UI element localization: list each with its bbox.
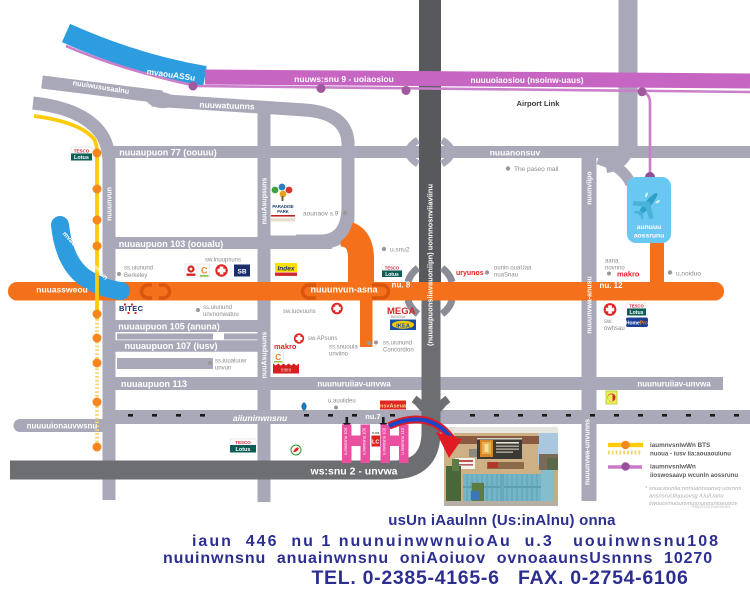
svg-text:nuaSnau: nuaSnau: [494, 273, 518, 279]
svg-text:nuunuruiiav-unvwa: nuunuruiiav-unvwa: [317, 380, 391, 389]
svg-text:nuunuruiiav-unvwa: nuunuruiiav-unvwa: [637, 380, 711, 389]
svg-text:HomePro: HomePro: [626, 321, 648, 327]
svg-text:Berkeley: Berkeley: [124, 273, 147, 279]
svg-text:BANGNA: BANGNA: [391, 315, 406, 319]
svg-text:nuuaupuon 103 (ooualu): nuuaupuon 103 (ooualu): [119, 239, 224, 249]
svg-text:nuuaupuon 113: nuuaupuon 113: [121, 379, 187, 389]
svg-text:MapSodchuensans: MapSodchuensans: [692, 504, 731, 509]
svg-text:iaumnvsnlwWn BTS: iaumnvsnlwWn BTS: [650, 442, 710, 449]
svg-text:(nuuaupuonsiiavauoniipn) uonnn: (nuuaupuonsiiavauoniipn) uonnnosnviiavii…: [426, 184, 435, 346]
svg-text:unviino: unviino: [329, 352, 349, 358]
svg-text:nuuunvwa-unvunns: nuuunvwa-unvunns: [585, 419, 592, 485]
svg-text:aunuuu: aunuuu: [637, 224, 662, 231]
svg-text:sw.iuovuuns: sw.iuovuuns: [283, 309, 316, 315]
svg-text:Index: Index: [278, 266, 295, 273]
svg-text:n:ua: n:ua: [372, 431, 379, 435]
svg-text:ss.iuualuuw: ss.iuualuuw: [215, 359, 247, 365]
svg-text:ounin ouaUaa: ounin ouaUaa: [494, 266, 532, 272]
svg-text:nuunviipo: nuunviipo: [587, 171, 594, 204]
svg-text:TESCO: TESCO: [629, 304, 644, 309]
svg-text:TESCO: TESCO: [74, 148, 90, 153]
svg-text:owhsau: owhsau: [604, 326, 625, 332]
svg-text:sw.lnuupsuns: sw.lnuupsuns: [205, 258, 241, 264]
svg-text:u.inwnsnu 106: u.inwnsnu 106: [361, 427, 366, 455]
svg-text:makro: makro: [617, 270, 640, 279]
svg-text:nuuaupuon 107 (iusv): nuuaupuon 107 (iusv): [124, 341, 217, 351]
svg-text:!!!!!!!!: !!!!!!!!: [281, 368, 291, 373]
svg-text:iaun 446 nu 1 nuunuinwwnuioA: iaun 446 nu 1 nuunuinwwnuioAu u.3 uouinw…: [192, 533, 720, 550]
svg-text:u.snu2: u.snu2: [390, 247, 410, 254]
svg-text:Airport Link: Airport Link: [516, 99, 560, 108]
svg-text:nsvAseua: nsvAseua: [380, 403, 407, 409]
svg-text:ansnsruUlnpuovsg iUulUanu: ansnsruUlnpuovsg iUulUanu: [649, 494, 724, 500]
svg-text:IKEA: IKEA: [396, 323, 411, 329]
svg-text:TEL. 0-2385-4165-6 FAX. 0-27: TEL. 0-2385-4165-6 FAX. 0-2754-6106: [311, 567, 688, 589]
svg-text:C: C: [275, 352, 281, 362]
svg-text:TESCO: TESCO: [385, 266, 400, 271]
svg-text:nu. 12: nu. 12: [599, 281, 623, 290]
svg-text:nu. 8: nu. 8: [392, 281, 411, 290]
svg-text:aana: aana: [605, 259, 619, 265]
svg-text:nuuassweou: nuuassweou: [36, 285, 87, 295]
svg-text:u.inwnsnu 104: u.inwnsnu 104: [343, 427, 348, 455]
svg-text:unvnonwatuu: unvnonwatuu: [203, 312, 239, 318]
svg-text:unvun: unvun: [215, 366, 231, 372]
svg-text:nuuunvun-asna: nuuunvun-asna: [311, 285, 379, 295]
svg-text:sw.: sw.: [604, 319, 613, 325]
svg-text:Lotus: Lotus: [74, 155, 89, 161]
svg-text:u.inwnsnu 110: u.inwnsnu 110: [400, 427, 405, 454]
svg-text:nuuuuionauvwsnu: nuuuuionauvwsnu: [27, 422, 98, 431]
svg-text:TESCO: TESCO: [235, 440, 251, 445]
svg-text:ss.uiunund: ss.uiunund: [383, 341, 412, 347]
svg-text:sw.APsuns: sw.APsuns: [308, 336, 337, 342]
svg-text:ss.snuouia: ss.snuouia: [329, 345, 358, 351]
svg-text:u.inwnsnu 108: u.inwnsnu 108: [381, 427, 386, 455]
svg-text:ss.uiunund: ss.uiunund: [203, 305, 232, 311]
svg-text:* snua:iouniia:nnnuannsanvq uo: * snua:iouniia:nnnuannsanvq uovnns: [645, 486, 741, 492]
svg-text:aiiuninwnsnu: aiiuninwnsnu: [233, 413, 288, 423]
svg-text:nuuws:snu 9 - uoiaosiou: nuuws:snu 9 - uoiaosiou: [294, 74, 394, 84]
svg-text:nuuaupuon 77 (oouuu): nuuaupuon 77 (oouuu): [119, 148, 216, 158]
svg-text:iioswosaavp wcunln aossrunu: iioswosaavp wcunln aossrunu: [650, 472, 738, 479]
svg-text:aounaov s.9: aounaov s.9: [303, 211, 339, 218]
svg-text:Concordion: Concordion: [383, 348, 414, 354]
svg-text:uryunos: uryunos: [456, 270, 484, 277]
svg-text:C: C: [201, 266, 208, 276]
svg-text:iaumnvsnlwWn: iaumnvsnlwWn: [650, 464, 696, 471]
svg-text:ws:snu 2 - unvwa: ws:snu 2 - unvwa: [310, 466, 398, 478]
svg-text:nu.7: nu.7: [365, 412, 380, 421]
svg-text:aossrunu: aossrunu: [634, 233, 665, 240]
svg-text:The paseo mall: The paseo mall: [514, 166, 559, 173]
svg-text:ss.uiunund: ss.uiunund: [124, 266, 153, 272]
svg-text:makro: makro: [274, 342, 297, 351]
svg-text:nuuunvun: nuuunvun: [107, 187, 114, 221]
svg-text:PARK: PARK: [277, 209, 289, 214]
svg-text:nuuanonsuv: nuuanonsuv: [490, 148, 541, 158]
svg-text:nuuAsupsuns: nuuAsupsuns: [262, 178, 269, 225]
svg-text:SB: SB: [237, 269, 246, 276]
svg-text:nuoua - iusv iia:aouaouiunu: nuoua - iusv iia:aouaouiunu: [650, 451, 731, 458]
svg-text:nuuwatuunns: nuuwatuunns: [199, 100, 255, 112]
svg-text:nuuaupuon 105 (anuna): nuuaupuon 105 (anuna): [118, 322, 220, 332]
svg-text:Lotus: Lotus: [385, 272, 399, 278]
svg-text:usUn iAaulnn (Us:inAlnu) onna: usUn iAaulnn (Us:inAlnu) onna: [388, 512, 616, 529]
svg-text:u.auuiideu: u.auuiideu: [328, 399, 356, 405]
svg-text:nuuuoiaosiou (nsoinw-uaus): nuuuoiaosiou (nsoinw-uaus): [471, 75, 584, 85]
svg-text:nuuunvwa-anusu: nuuunvwa-anusu: [587, 276, 594, 334]
svg-text:LC: LC: [372, 440, 379, 446]
svg-text:Lotus: Lotus: [236, 447, 251, 453]
svg-text:nuuAsupsuns: nuuAsupsuns: [262, 332, 269, 379]
svg-text:u.noiduo: u.noiduo: [676, 271, 701, 278]
svg-text:nuuinwnsnu anuainwnsnu oniAo: nuuinwnsnu anuainwnsnu oniAoiuov ovnoaau…: [163, 550, 713, 567]
svg-text:Lotus: Lotus: [629, 310, 643, 316]
